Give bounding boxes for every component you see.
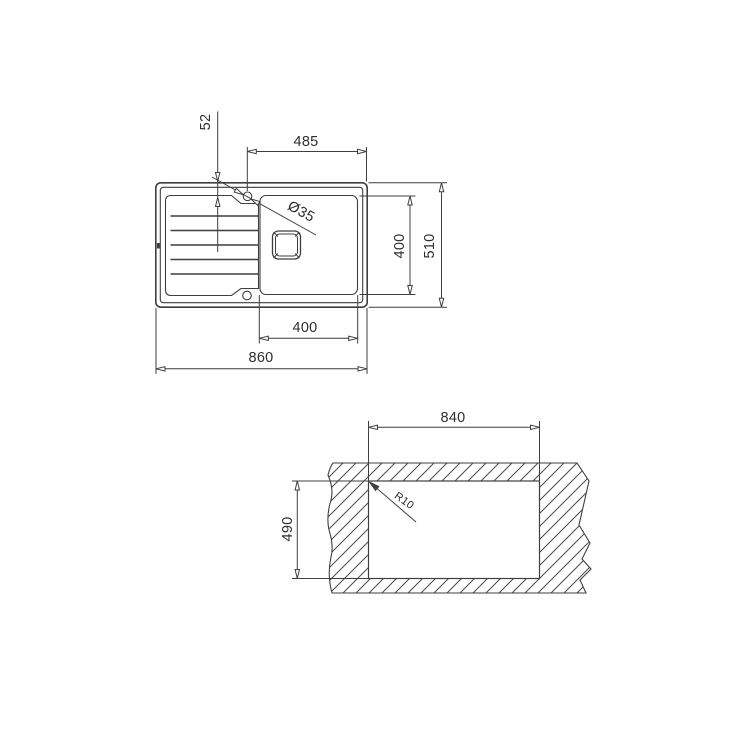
cutout-view bbox=[328, 463, 591, 593]
drain-square bbox=[273, 231, 301, 259]
dim-485-lines bbox=[247, 147, 366, 191]
waste-hole bbox=[243, 291, 252, 300]
dim-52-label: 52 bbox=[198, 114, 214, 131]
rim-overflow-tick bbox=[157, 243, 160, 249]
dim-400-bottom-label: 400 bbox=[292, 320, 317, 336]
dim-510-label: 510 bbox=[422, 233, 438, 258]
dim-490-label: 490 bbox=[280, 516, 296, 541]
sink-top-view bbox=[156, 183, 367, 307]
drawing-linework bbox=[0, 0, 732, 732]
sink-dimension-drawing: 52 485 Ø35 400 510 400 860 840 490 R10 bbox=[0, 0, 732, 732]
drainboard-grooves bbox=[171, 216, 259, 274]
dim-400-right-label: 400 bbox=[392, 233, 408, 258]
dim-485-label: 485 bbox=[293, 134, 318, 150]
dim-860-label: 860 bbox=[248, 350, 273, 366]
dim-840-label: 840 bbox=[440, 410, 465, 426]
